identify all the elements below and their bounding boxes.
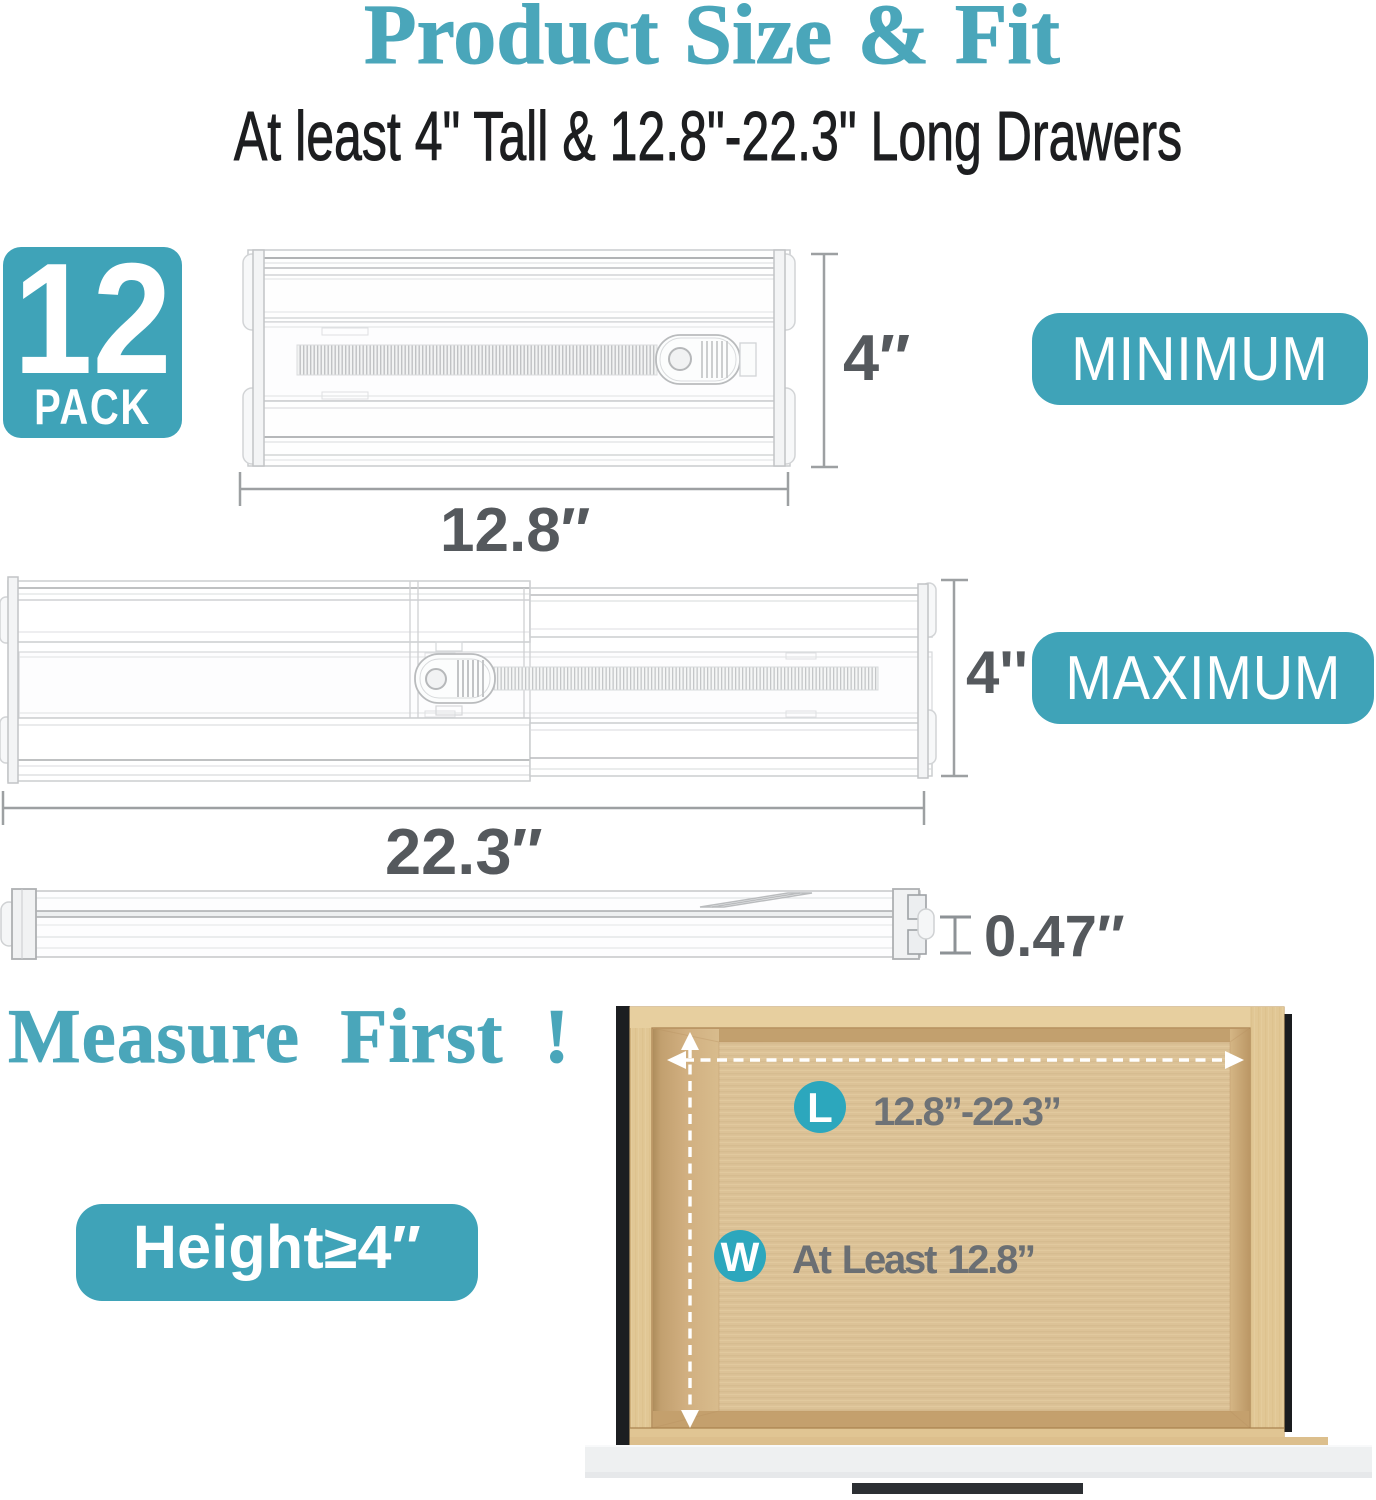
svg-text:12.8”-22.3”: 12.8”-22.3” — [873, 1090, 1060, 1134]
svg-text:At Least 12.8”: At Least 12.8” — [792, 1238, 1034, 1282]
svg-text:W: W — [721, 1234, 760, 1280]
svg-text:L: L — [807, 1084, 833, 1131]
